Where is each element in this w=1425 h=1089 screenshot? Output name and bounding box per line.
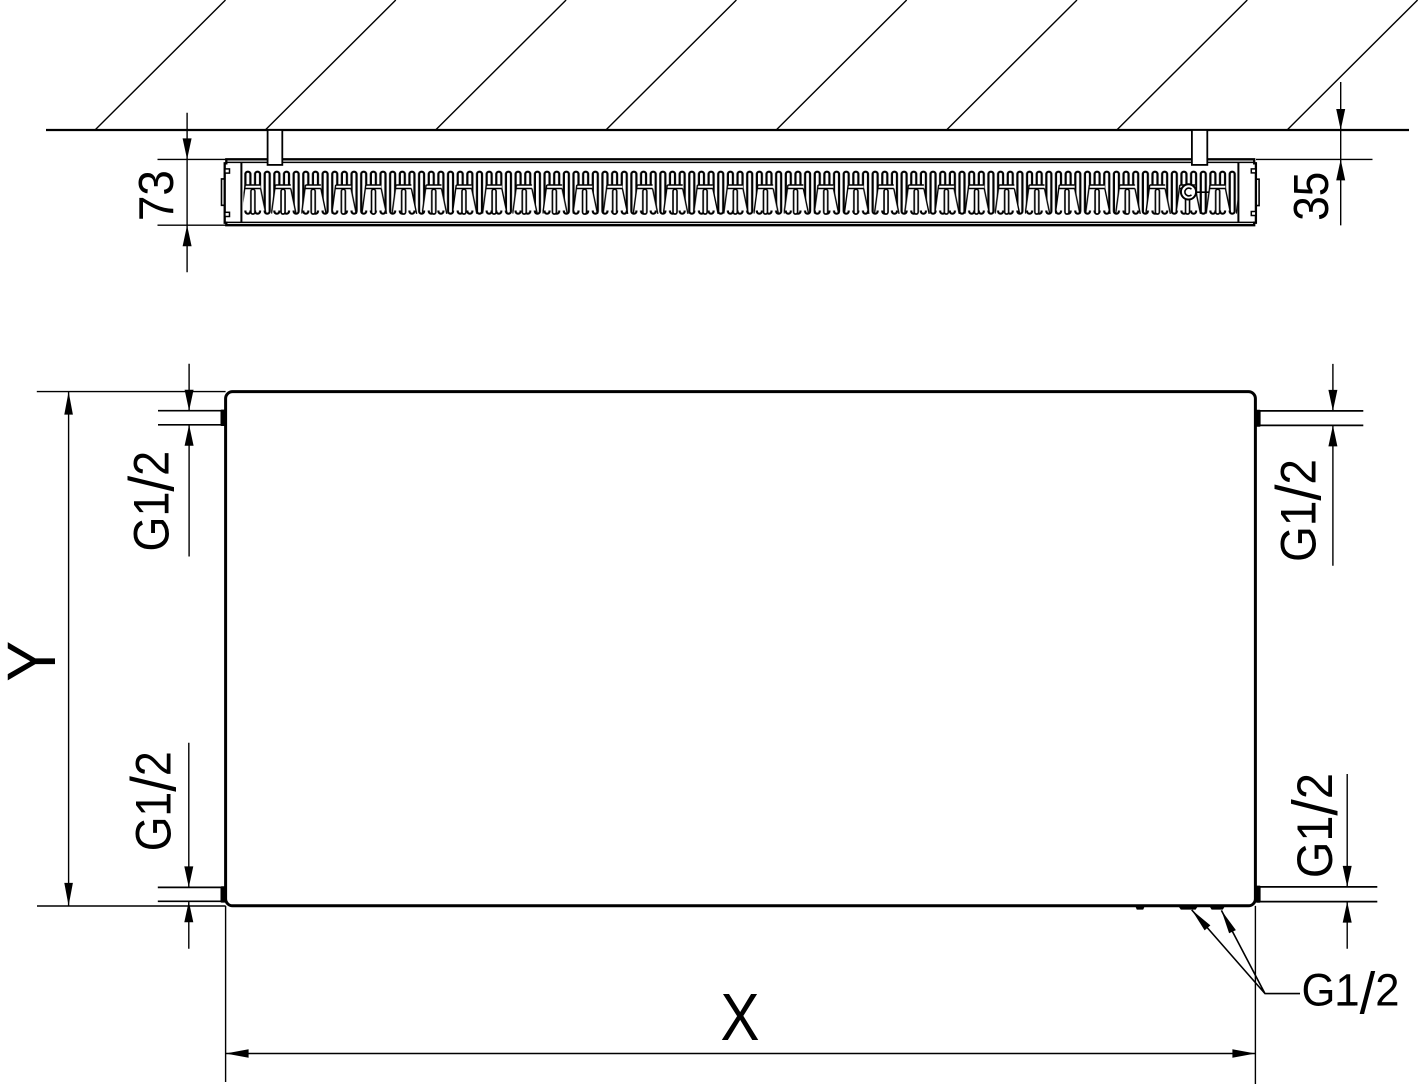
svg-text:73: 73 — [129, 170, 184, 221]
svg-text:G1/2: G1/2 — [118, 451, 188, 552]
svg-text:G1/2: G1/2 — [1302, 962, 1400, 1027]
svg-text:G1/2: G1/2 — [1281, 773, 1351, 878]
svg-text:35: 35 — [1284, 172, 1339, 221]
svg-text:G1/2: G1/2 — [120, 751, 190, 851]
svg-text:X: X — [721, 980, 760, 1055]
svg-text:G1/2: G1/2 — [1264, 459, 1334, 562]
svg-text:Y: Y — [0, 641, 70, 682]
